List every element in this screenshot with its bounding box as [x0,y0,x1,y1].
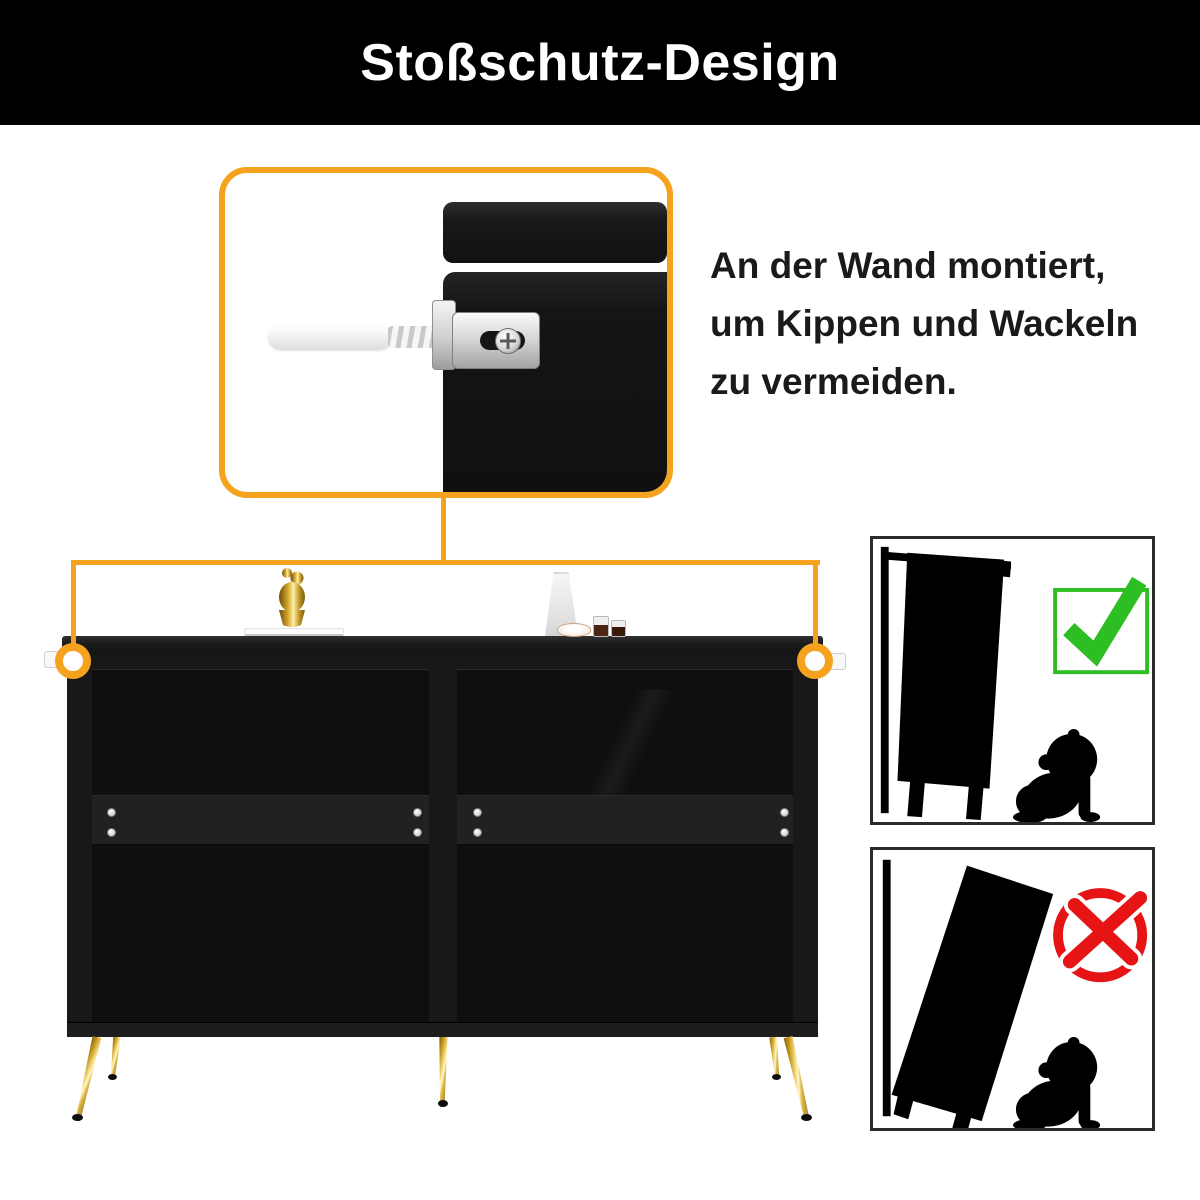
rail-screw [780,808,789,817]
callout-connector-line [441,497,446,562]
highlight-line-left [71,560,76,652]
baby-silhouette [1013,1037,1100,1128]
diagram-correct-graphic [873,539,1152,822]
leg-cap [108,1074,117,1080]
wall-anchor [268,324,392,350]
leg-front-left [72,1036,103,1122]
check-icon [1055,581,1147,672]
leg-cap [801,1114,812,1121]
decor-bowl [557,623,591,637]
product-infographic: Stoßschutz-Design An der Wand montiert, … [0,0,1200,1200]
cabinet-bottom-strip [67,1022,818,1037]
highlight-line-right [813,560,818,652]
leg-cap [72,1114,83,1121]
leg-center [437,1037,449,1107]
rail-screw [780,828,789,837]
decor-glass [593,616,609,637]
diagram-incorrect-graphic [873,850,1152,1128]
cabinet-back-panel-left [92,669,429,1022]
bracket-screw [495,328,521,354]
cabinet-rail-right [457,795,793,845]
rail-screw [473,828,482,837]
wall-line [883,860,891,1116]
highlight-ring-left [55,643,91,679]
header-banner: Stoßschutz-Design [0,0,1200,125]
cabinet-silhouette-tipping [892,866,1054,1128]
page-title: Stoßschutz-Design [360,33,839,93]
detail-callout [219,167,673,498]
rail-screw [413,828,422,837]
callout-cabinet-top-edge [443,202,667,263]
leg-back-left [108,1036,122,1079]
rail-screw [107,828,116,837]
feature-description: An der Wand montiert, um Kippen und Wack… [710,237,1150,411]
wall-line [881,547,889,813]
rail-screw [413,808,422,817]
leg-cap [772,1074,781,1080]
feature-line-1: An der Wand montiert, [710,245,1105,286]
leg-front-right [782,1036,813,1122]
decor-glass [611,620,626,637]
diagram-incorrect [870,847,1155,1131]
callout-cabinet-side [443,272,667,492]
cabinet-silhouette-upright [885,552,1011,820]
feature-line-2: um Kippen und Wackeln [710,303,1138,344]
rail-screw [107,808,116,817]
cabinet-top [62,636,823,655]
feature-line-3: zu vermeiden. [710,361,957,402]
cross-icon [1058,893,1142,977]
highlight-bracket-line [71,560,820,565]
highlight-ring-right [797,643,833,679]
leg-back-right [768,1036,782,1079]
cabinet-rail-left [92,795,429,845]
leg-cap [438,1100,448,1107]
diagram-correct [870,536,1155,825]
decor-gold-figurine [270,566,314,630]
rail-screw [473,808,482,817]
baby-silhouette [1013,729,1100,822]
